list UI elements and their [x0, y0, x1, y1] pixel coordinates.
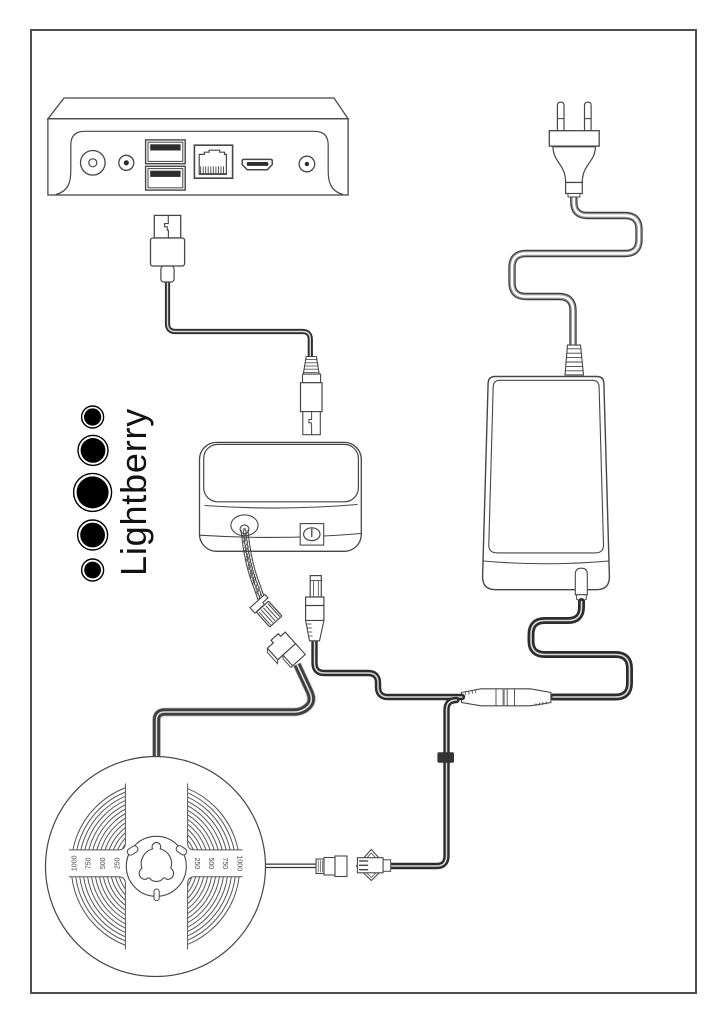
svg-text:1000: 1000 [72, 855, 79, 871]
svg-text:Lightberry: Lightberry [113, 408, 154, 576]
svg-text:250: 250 [193, 857, 200, 869]
svg-text:750: 750 [86, 857, 93, 869]
svg-text:750: 750 [221, 857, 228, 869]
svg-text:500: 500 [100, 857, 107, 869]
svg-text:250: 250 [114, 857, 121, 869]
svg-text:500: 500 [207, 857, 214, 869]
svg-text:1000: 1000 [235, 856, 242, 872]
